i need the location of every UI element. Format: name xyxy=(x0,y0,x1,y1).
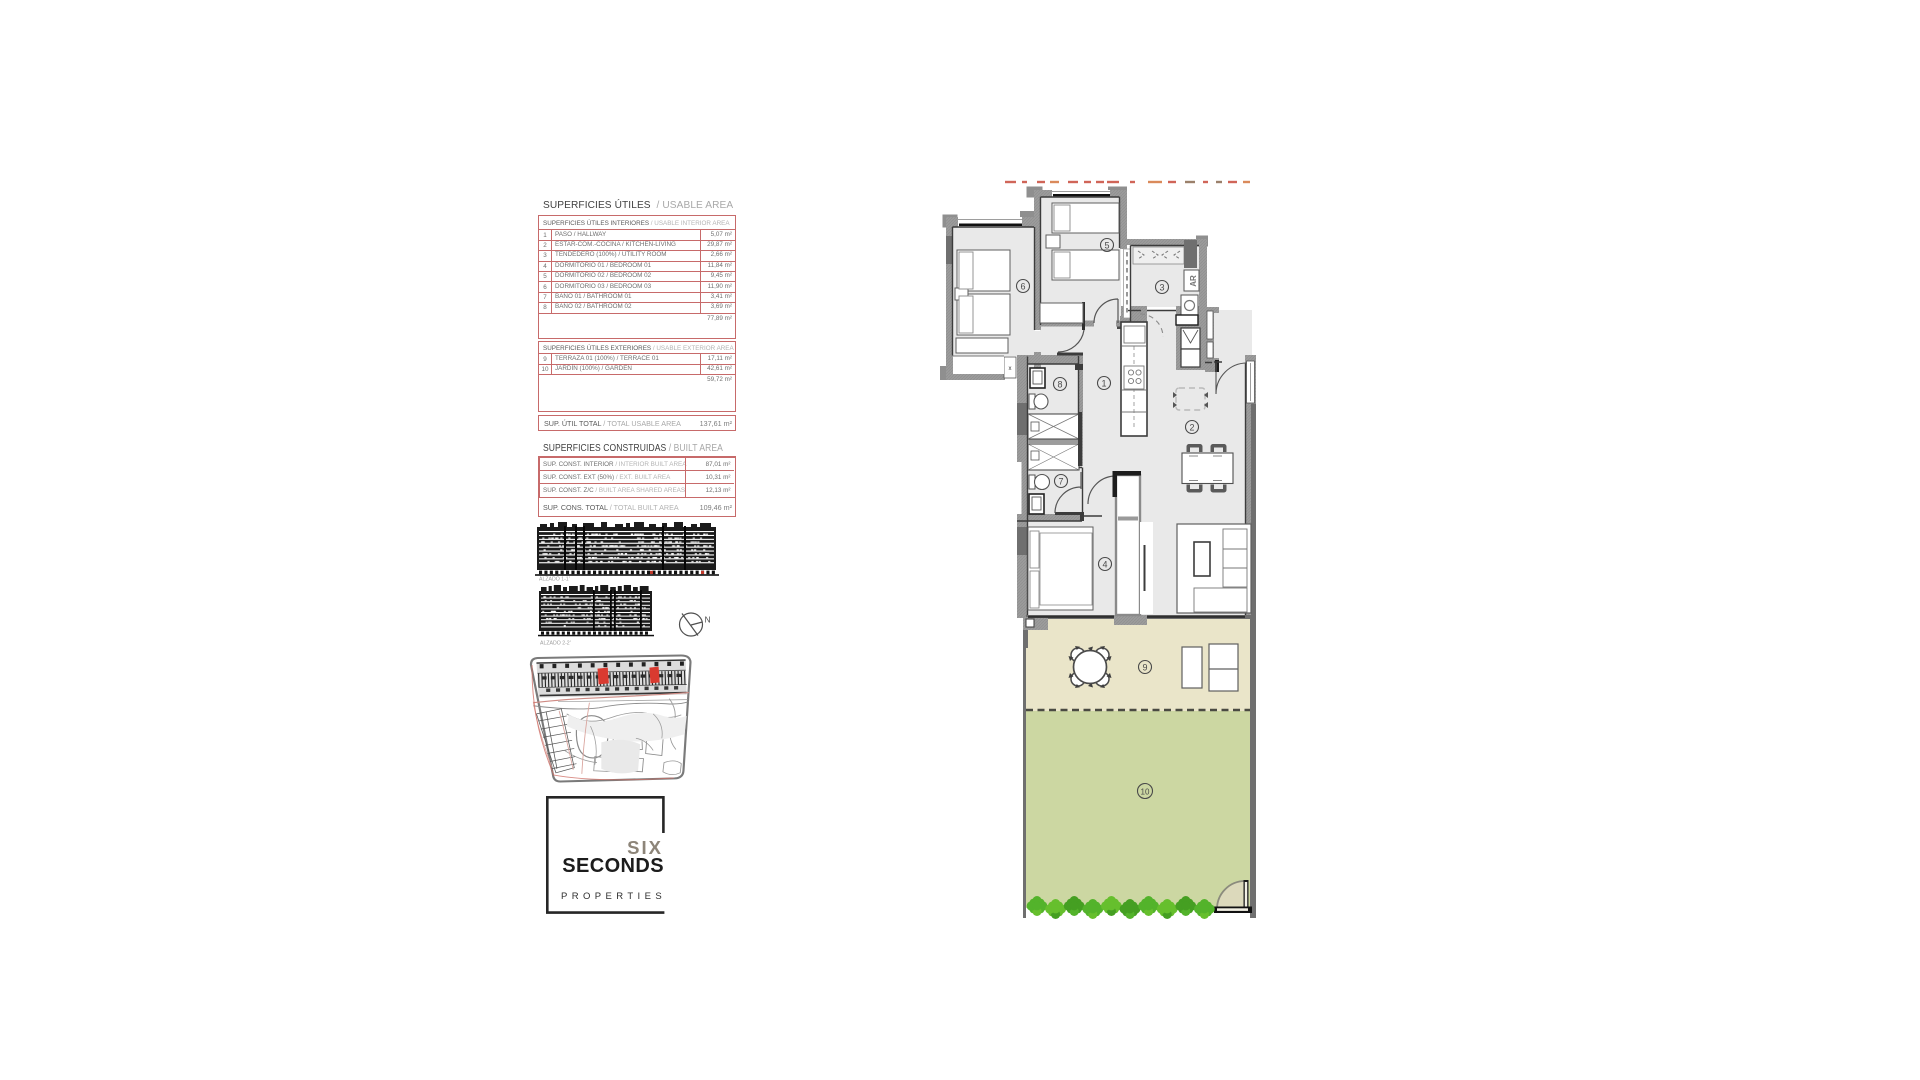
svg-text:1: 1 xyxy=(1101,379,1106,389)
svg-text:10: 10 xyxy=(1141,788,1150,797)
svg-text:N: N xyxy=(705,615,711,625)
svg-text:4: 4 xyxy=(1102,560,1107,570)
svg-text:6: 6 xyxy=(1020,282,1025,292)
svg-text:7: 7 xyxy=(1058,477,1063,487)
svg-text:5: 5 xyxy=(1104,241,1109,251)
svg-text:x: x xyxy=(1009,366,1012,372)
svg-text:2: 2 xyxy=(1189,423,1194,433)
svg-text:3: 3 xyxy=(1159,283,1164,293)
svg-text:8: 8 xyxy=(1057,380,1062,390)
svg-text:9: 9 xyxy=(1142,663,1147,673)
svg-text:AR: AR xyxy=(1189,275,1198,287)
svg-text:ALZADO 1-1': ALZADO 1-1' xyxy=(539,577,570,583)
svg-text:ALZADO 2-2': ALZADO 2-2' xyxy=(540,641,571,647)
